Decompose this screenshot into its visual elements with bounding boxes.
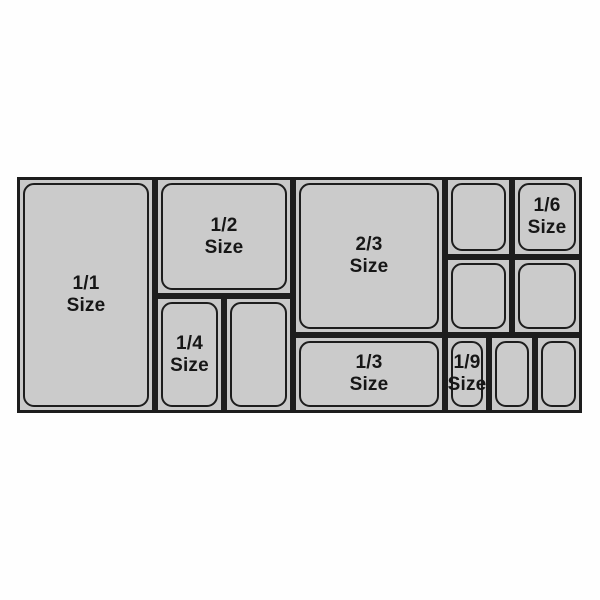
pan-1-2-word: Size (205, 237, 244, 259)
pan-1-1-word: Size (67, 295, 106, 317)
pan-1-6-unlabeled-1 (451, 183, 506, 251)
pan-1-6-word: Size (528, 217, 567, 239)
pan-1-9-unlabeled-2 (541, 341, 576, 407)
pan-1-3-cell: 1/3 Size (293, 335, 445, 413)
pan-1-6: 1/6 Size (518, 183, 576, 251)
pan-1-9-unlabeled-1 (495, 341, 529, 407)
pan-1-9-cell: 1/9 Size (445, 335, 489, 413)
pan-1-9: 1/9 Size (451, 341, 483, 407)
pan-1-6-unlabeled-2 (451, 263, 506, 329)
pan-2-3-label: 2/3 Size (350, 234, 389, 278)
pan-1-4-cell: 1/4 Size (155, 296, 224, 413)
pan-1-4-unlabeled (230, 302, 287, 407)
pan-1-6-unlabeled-1-cell (445, 177, 512, 257)
pan-1-4-word: Size (170, 355, 209, 377)
pan-1-2-label: 1/2 Size (205, 215, 244, 259)
pan-1-2-fraction: 1/2 (210, 215, 237, 237)
pan-1-3-word: Size (350, 374, 389, 396)
pan-2-3-word: Size (350, 256, 389, 278)
pan-1-4-unlabeled-cell (224, 296, 293, 413)
pan-1-9-label: 1/9 Size (448, 352, 487, 396)
pan-1-6-cell: 1/6 Size (512, 177, 582, 257)
pan-1-9-unlabeled-2-cell (535, 335, 582, 413)
pan-2-3-fraction: 2/3 (355, 234, 382, 256)
pan-1-9-unlabeled-1-cell (489, 335, 535, 413)
pan-2-3-cell: 2/3 Size (293, 177, 445, 335)
pan-1-2-cell: 1/2 Size (155, 177, 293, 296)
pan-1-4-fraction: 1/4 (176, 333, 203, 355)
pan-1-3-label: 1/3 Size (350, 352, 389, 396)
pan-size-diagram-canvas: 1/1 Size 1/2 Size 1/4 Size (0, 0, 600, 600)
pan-1-6-label: 1/6 Size (528, 195, 567, 239)
pan-1-9-fraction: 1/9 (454, 352, 481, 374)
pan-1-1-cell: 1/1 Size (17, 177, 155, 413)
pan-1-1-label: 1/1 Size (67, 273, 106, 317)
pan-1-9-word: Size (448, 374, 487, 396)
pan-1-3: 1/3 Size (299, 341, 439, 407)
pan-1-2: 1/2 Size (161, 183, 287, 290)
pan-1-3-fraction: 1/3 (355, 352, 382, 374)
pan-size-diagram: 1/1 Size 1/2 Size 1/4 Size (17, 177, 582, 413)
pan-1-4: 1/4 Size (161, 302, 218, 407)
pan-1-6-unlabeled-2-cell (445, 257, 512, 335)
pan-1-4-label: 1/4 Size (170, 333, 209, 377)
pan-1-1-fraction: 1/1 (72, 273, 99, 295)
pan-2-3: 2/3 Size (299, 183, 439, 329)
pan-1-6-fraction: 1/6 (533, 195, 560, 217)
pan-1-1: 1/1 Size (23, 183, 149, 407)
pan-1-6-unlabeled-3-cell (512, 257, 582, 335)
pan-1-6-unlabeled-3 (518, 263, 576, 329)
